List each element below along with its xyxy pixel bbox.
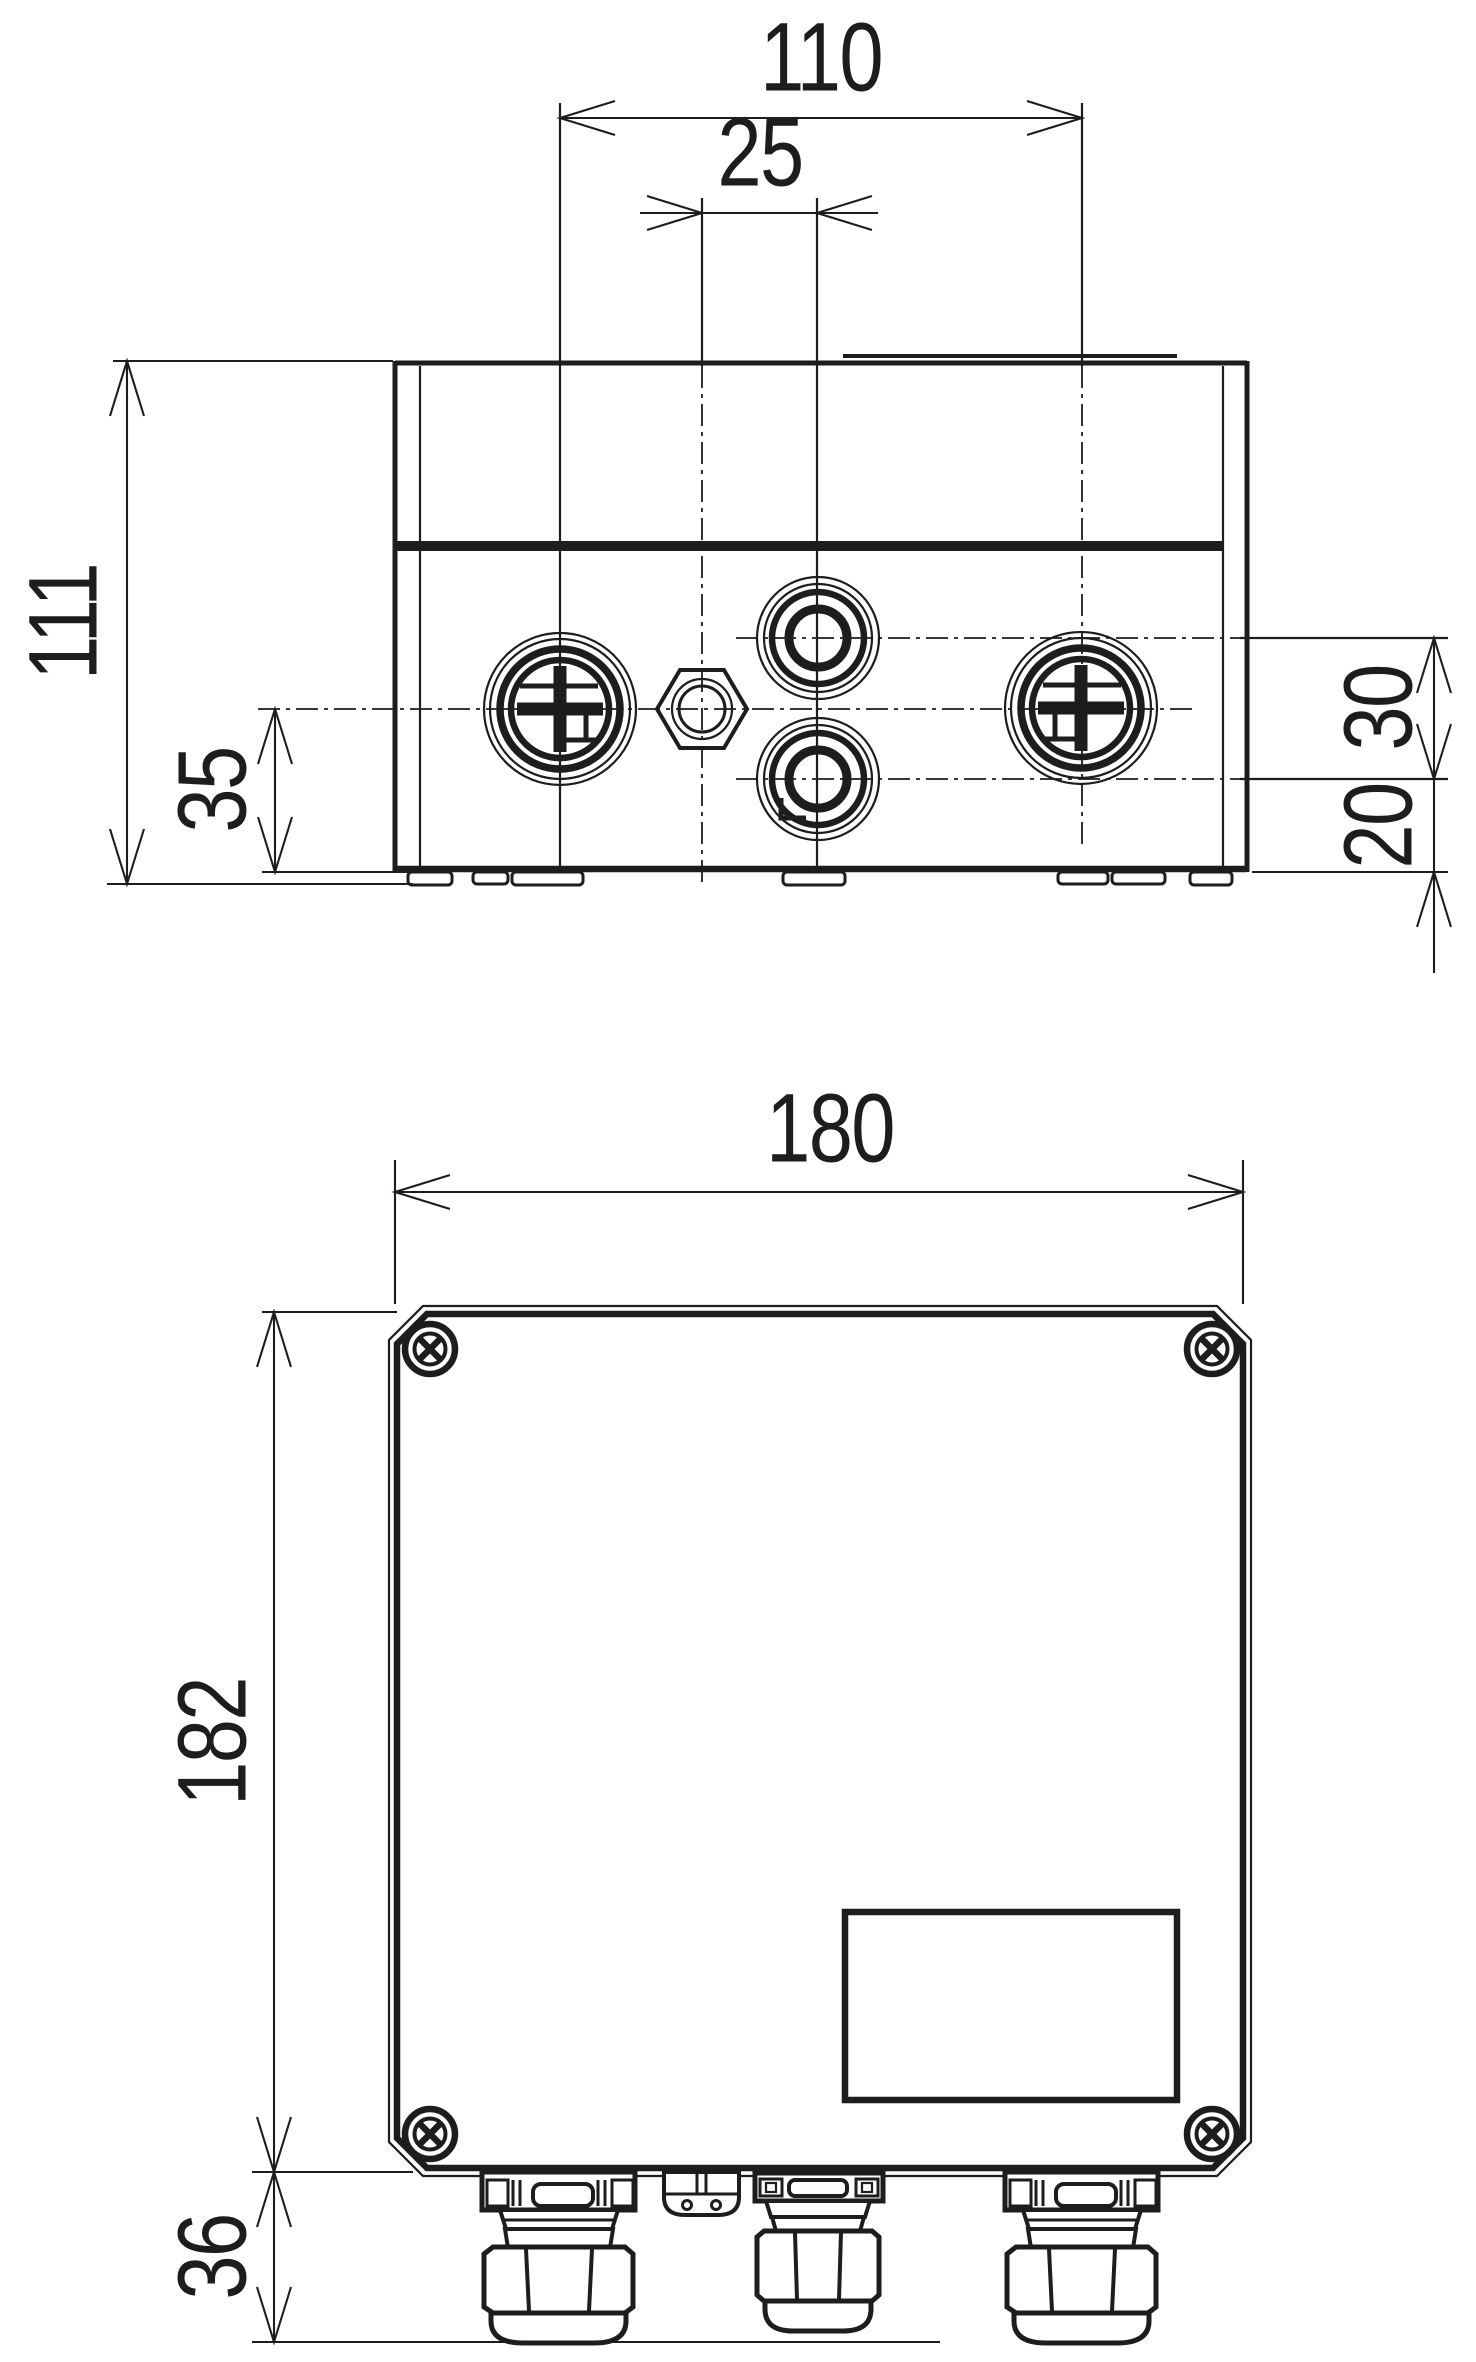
drawing-page: 110 25 111 35 30 20 180	[0, 0, 1476, 2362]
mounting-feet	[408, 872, 1232, 885]
dimension-30: 30	[1324, 638, 1451, 779]
knockout-gland-right	[1005, 632, 1157, 784]
corner-screw-bottom-right	[1187, 2109, 1237, 2159]
dimension-180: 180	[395, 1074, 1243, 1304]
cable-gland-right	[1005, 2172, 1158, 2343]
cable-gland-left	[482, 2172, 635, 2343]
dim-182-label: 182	[158, 1678, 266, 1806]
dim-180-label: 180	[766, 1074, 894, 1182]
dimension-110: 110	[560, 3, 1082, 135]
top-view: 110 25 111 35 30 20	[9, 3, 1451, 973]
top-view-centerlines	[258, 103, 1448, 882]
nameplate-label	[845, 1912, 1177, 2100]
technical-drawing: 110 25 111 35 30 20 180	[0, 0, 1476, 2362]
dim-111-label: 111	[9, 564, 117, 680]
dim-20-label: 20	[1324, 783, 1432, 868]
dimension-182: 182	[158, 1312, 413, 2172]
corner-screw-top-right	[1187, 1324, 1237, 1374]
cable-gland-middle	[755, 2173, 883, 2331]
corner-screw-top-left	[405, 1324, 455, 1374]
dimension-35: 35	[158, 709, 413, 872]
dimension-20: 20	[1252, 779, 1451, 973]
lid-joint-line	[397, 541, 1223, 551]
mounting-clip	[664, 2172, 739, 2215]
dim-35-label: 35	[158, 747, 266, 832]
dim-36-label: 36	[158, 2214, 266, 2299]
enclosure-side-outline	[395, 356, 1247, 872]
dim-110-label: 110	[760, 3, 882, 111]
front-view: 180 182 36	[158, 1074, 1251, 2343]
corner-screw-bottom-left	[405, 2109, 455, 2159]
dim-30-label: 30	[1324, 665, 1432, 750]
dim-25-label: 25	[717, 98, 802, 206]
